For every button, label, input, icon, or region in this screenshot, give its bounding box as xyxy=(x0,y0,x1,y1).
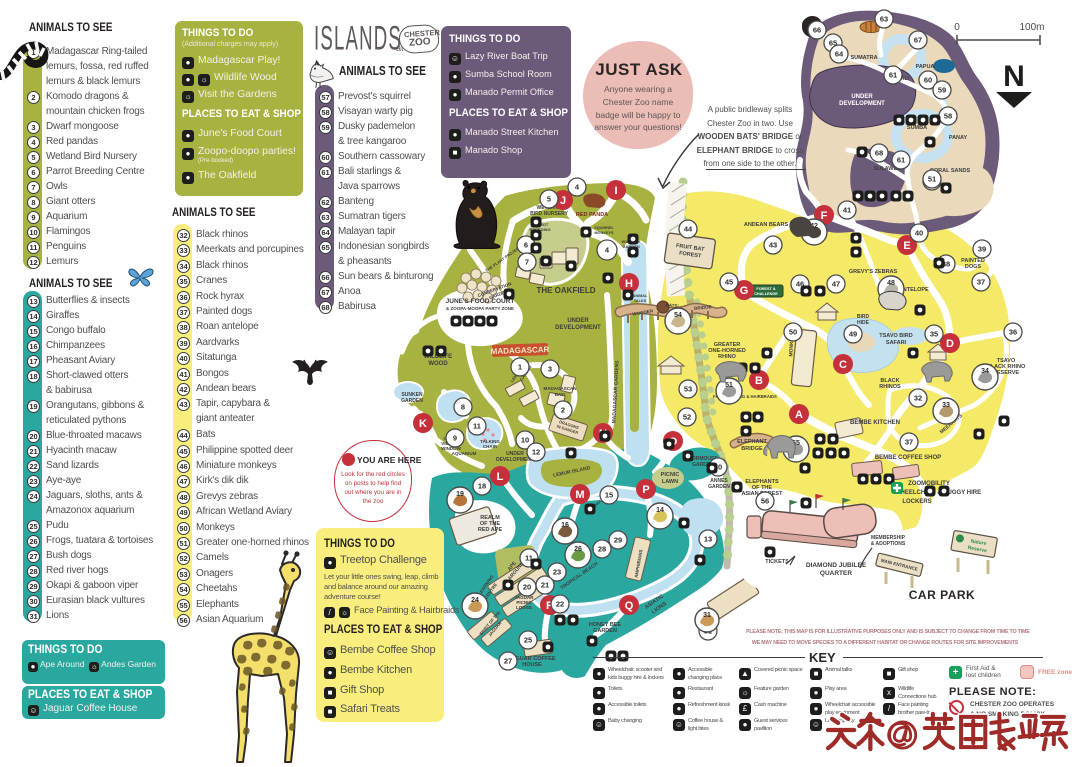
svg-text:60: 60 xyxy=(924,76,932,85)
svg-text:CHAIR: CHAIR xyxy=(483,444,498,449)
svg-text:23: 23 xyxy=(553,568,561,577)
svg-text:G: G xyxy=(740,285,749,297)
svg-text:40: 40 xyxy=(915,229,923,238)
svg-text:JUNE'S FOOD COURT: JUNE'S FOOD COURT xyxy=(446,298,515,305)
svg-text:BAY!: BAY! xyxy=(555,392,566,397)
svg-text:BEMBE COFFEE SHOP: BEMBE COFFEE SHOP xyxy=(875,455,941,461)
svg-text:GREVY'S ZEBRAS: GREVY'S ZEBRAS xyxy=(849,269,898,275)
svg-text:N: N xyxy=(1003,60,1025,93)
svg-text:59: 59 xyxy=(938,86,946,95)
svg-text:A: A xyxy=(795,409,803,421)
svg-text:& ADOPTIONS: & ADOPTIONS xyxy=(871,541,906,547)
svg-text:19: 19 xyxy=(456,491,464,498)
svg-text:44: 44 xyxy=(684,225,693,234)
svg-text:RED APE: RED APE xyxy=(478,527,503,533)
svg-text:D: D xyxy=(946,338,954,350)
svg-text:6: 6 xyxy=(524,241,528,250)
svg-text:FOREST &: FOREST & xyxy=(756,287,775,291)
svg-text:14: 14 xyxy=(656,507,664,514)
svg-text:HIDE: HIDE xyxy=(857,320,870,326)
svg-text:12: 12 xyxy=(532,448,540,457)
svg-text:DEVELOPMENT: DEVELOPMENT xyxy=(839,101,885,107)
svg-text:LAWN: LAWN xyxy=(662,479,678,485)
svg-text:SUMATRA: SUMATRA xyxy=(850,55,877,61)
svg-text:37: 37 xyxy=(977,278,985,287)
svg-text:2: 2 xyxy=(561,406,565,415)
svg-text:DOGS: DOGS xyxy=(965,264,982,270)
svg-text:37: 37 xyxy=(905,438,913,447)
svg-text:AMPHIBIANS: AMPHIBIANS xyxy=(634,549,644,578)
svg-text:WOODEN: WOODEN xyxy=(632,308,653,317)
svg-text:20: 20 xyxy=(523,583,531,592)
svg-text:RED PANDA: RED PANDA xyxy=(576,212,608,218)
svg-text:3: 3 xyxy=(548,365,552,374)
svg-text:41: 41 xyxy=(843,206,851,215)
svg-text:66: 66 xyxy=(813,26,821,35)
svg-text:33: 33 xyxy=(942,402,950,409)
svg-text:RHINO: RHINO xyxy=(718,354,736,360)
svg-text:64: 64 xyxy=(835,50,844,59)
svg-text:L: L xyxy=(497,471,504,483)
svg-text:34: 34 xyxy=(981,368,989,375)
svg-text:67: 67 xyxy=(914,36,922,45)
svg-text:26: 26 xyxy=(574,546,582,553)
svg-text:WOOD: WOOD xyxy=(428,361,448,367)
svg-text:MONKEYS: MONKEYS xyxy=(594,231,614,235)
svg-text:43: 43 xyxy=(769,241,777,250)
svg-text:29: 29 xyxy=(614,536,622,545)
svg-text:32: 32 xyxy=(914,394,922,403)
svg-text:GARDEN: GARDEN xyxy=(593,628,617,634)
svg-text:PAPUA: PAPUA xyxy=(916,64,935,70)
svg-text:LODGE: LODGE xyxy=(516,605,532,610)
svg-text:56: 56 xyxy=(761,497,769,506)
svg-text:50: 50 xyxy=(789,328,797,337)
svg-text:UNDER: UNDER xyxy=(567,318,589,324)
svg-text:TALKS: TALKS xyxy=(634,299,647,303)
svg-text:H: H xyxy=(625,278,633,290)
svg-text:HOUSE: HOUSE xyxy=(522,662,542,668)
svg-text:I: I xyxy=(614,185,617,197)
svg-text:1: 1 xyxy=(518,363,522,372)
svg-text:P: P xyxy=(642,484,649,496)
svg-text:SQUIRREL: SQUIRREL xyxy=(594,226,614,230)
svg-text:PANAY: PANAY xyxy=(949,135,968,141)
svg-text:WHEELCHAIR & BUGGY HIRE: WHEELCHAIR & BUGGY HIRE xyxy=(895,490,981,496)
svg-text:GARDEN: GARDEN xyxy=(401,398,423,404)
svg-text:100m: 100m xyxy=(1019,22,1044,33)
svg-text:GARDEN: GARDEN xyxy=(708,484,730,490)
svg-text:ANDEAN BEARS: ANDEAN BEARS xyxy=(744,222,789,228)
svg-text:UNDER: UNDER xyxy=(851,94,873,100)
svg-text:BEMBE KITCHEN: BEMBE KITCHEN xyxy=(850,420,900,426)
svg-text:13: 13 xyxy=(704,535,712,544)
svg-text:CHALLENGE: CHALLENGE xyxy=(754,292,778,296)
svg-text:61: 61 xyxy=(897,156,905,165)
svg-text:THE OAKFIELD: THE OAKFIELD xyxy=(536,286,595,295)
svg-text:BRIDGE: BRIDGE xyxy=(694,304,712,311)
svg-text:68: 68 xyxy=(875,149,883,158)
svg-text:M: M xyxy=(575,489,584,501)
svg-text:36: 36 xyxy=(1009,328,1017,337)
svg-text:TSAVO BIRD: TSAVO BIRD xyxy=(879,333,913,339)
svg-text:5: 5 xyxy=(547,195,551,204)
svg-text:7: 7 xyxy=(525,258,529,267)
svg-text:E: E xyxy=(903,240,910,252)
svg-text:31: 31 xyxy=(703,612,711,619)
svg-text:0: 0 xyxy=(954,22,960,33)
svg-text:45: 45 xyxy=(725,278,733,287)
svg-text:RHINOS: RHINOS xyxy=(879,384,901,390)
svg-text:16: 16 xyxy=(561,522,569,529)
svg-text:61: 61 xyxy=(889,71,897,80)
svg-text:F: F xyxy=(821,210,828,222)
svg-text:48: 48 xyxy=(887,280,895,287)
svg-text:SUMBA: SUMBA xyxy=(907,125,927,131)
svg-text:DIAMOND JUBILEE: DIAMOND JUBILEE xyxy=(806,562,867,569)
svg-text:MADAGASCAR GARDENS: MADAGASCAR GARDENS xyxy=(611,360,620,424)
svg-text:58: 58 xyxy=(944,112,952,121)
svg-text:27: 27 xyxy=(504,657,512,666)
svg-text:39: 39 xyxy=(978,245,986,254)
svg-text:49: 49 xyxy=(849,330,857,339)
svg-text:10: 10 xyxy=(521,436,529,445)
svg-text:MADAGASCAN: MADAGASCAN xyxy=(544,386,577,391)
svg-text:21: 21 xyxy=(541,581,549,590)
svg-text:C: C xyxy=(839,359,847,371)
svg-text:54: 54 xyxy=(674,312,682,319)
svg-text:9: 9 xyxy=(453,434,457,443)
svg-text:LEMUR ISLAND: LEMUR ISLAND xyxy=(553,465,592,479)
svg-text:18: 18 xyxy=(478,482,486,491)
svg-text:BIRD NURSERY: BIRD NURSERY xyxy=(530,211,569,217)
svg-text:K: K xyxy=(419,418,427,430)
svg-text:35: 35 xyxy=(930,330,938,339)
svg-text:PICNIC: PICNIC xyxy=(661,472,680,478)
svg-text:15: 15 xyxy=(605,491,613,500)
svg-text:QUARTER: QUARTER xyxy=(820,570,852,577)
svg-text:52: 52 xyxy=(683,413,691,422)
svg-text:DEVELOPMENT: DEVELOPMENT xyxy=(496,457,534,463)
svg-text:ANIMAL: ANIMAL xyxy=(633,294,648,298)
svg-text:J: J xyxy=(560,195,566,207)
svg-text:& ZOOPA-MOOPA PARTY ZONE: & ZOOPA-MOOPA PARTY ZONE xyxy=(446,306,514,311)
svg-text:AQUARIUM: AQUARIUM xyxy=(452,451,477,456)
svg-text:BRIDGE: BRIDGE xyxy=(741,446,763,452)
svg-text:DEVELOPMENT: DEVELOPMENT xyxy=(555,325,601,331)
svg-text:63: 63 xyxy=(880,15,888,24)
svg-text:B: B xyxy=(755,375,763,387)
svg-text:51: 51 xyxy=(928,175,936,184)
svg-text:51: 51 xyxy=(725,382,733,389)
svg-text:LOCKERS: LOCKERS xyxy=(902,499,931,505)
svg-text:22: 22 xyxy=(556,600,564,609)
svg-text:53: 53 xyxy=(684,385,692,394)
svg-text:Q: Q xyxy=(625,600,634,612)
svg-text:TICKETS: TICKETS xyxy=(765,559,789,565)
svg-text:8: 8 xyxy=(461,403,465,412)
svg-text:11: 11 xyxy=(473,422,481,431)
svg-text:25: 25 xyxy=(524,636,532,645)
svg-text:ELEPHANT: ELEPHANT xyxy=(737,439,767,445)
svg-text:47: 47 xyxy=(832,280,840,289)
svg-text:28: 28 xyxy=(598,545,606,554)
svg-text:CAR PARK: CAR PARK xyxy=(909,588,975,602)
svg-text:SAFARI: SAFARI xyxy=(886,340,907,346)
svg-text:24: 24 xyxy=(471,597,479,604)
